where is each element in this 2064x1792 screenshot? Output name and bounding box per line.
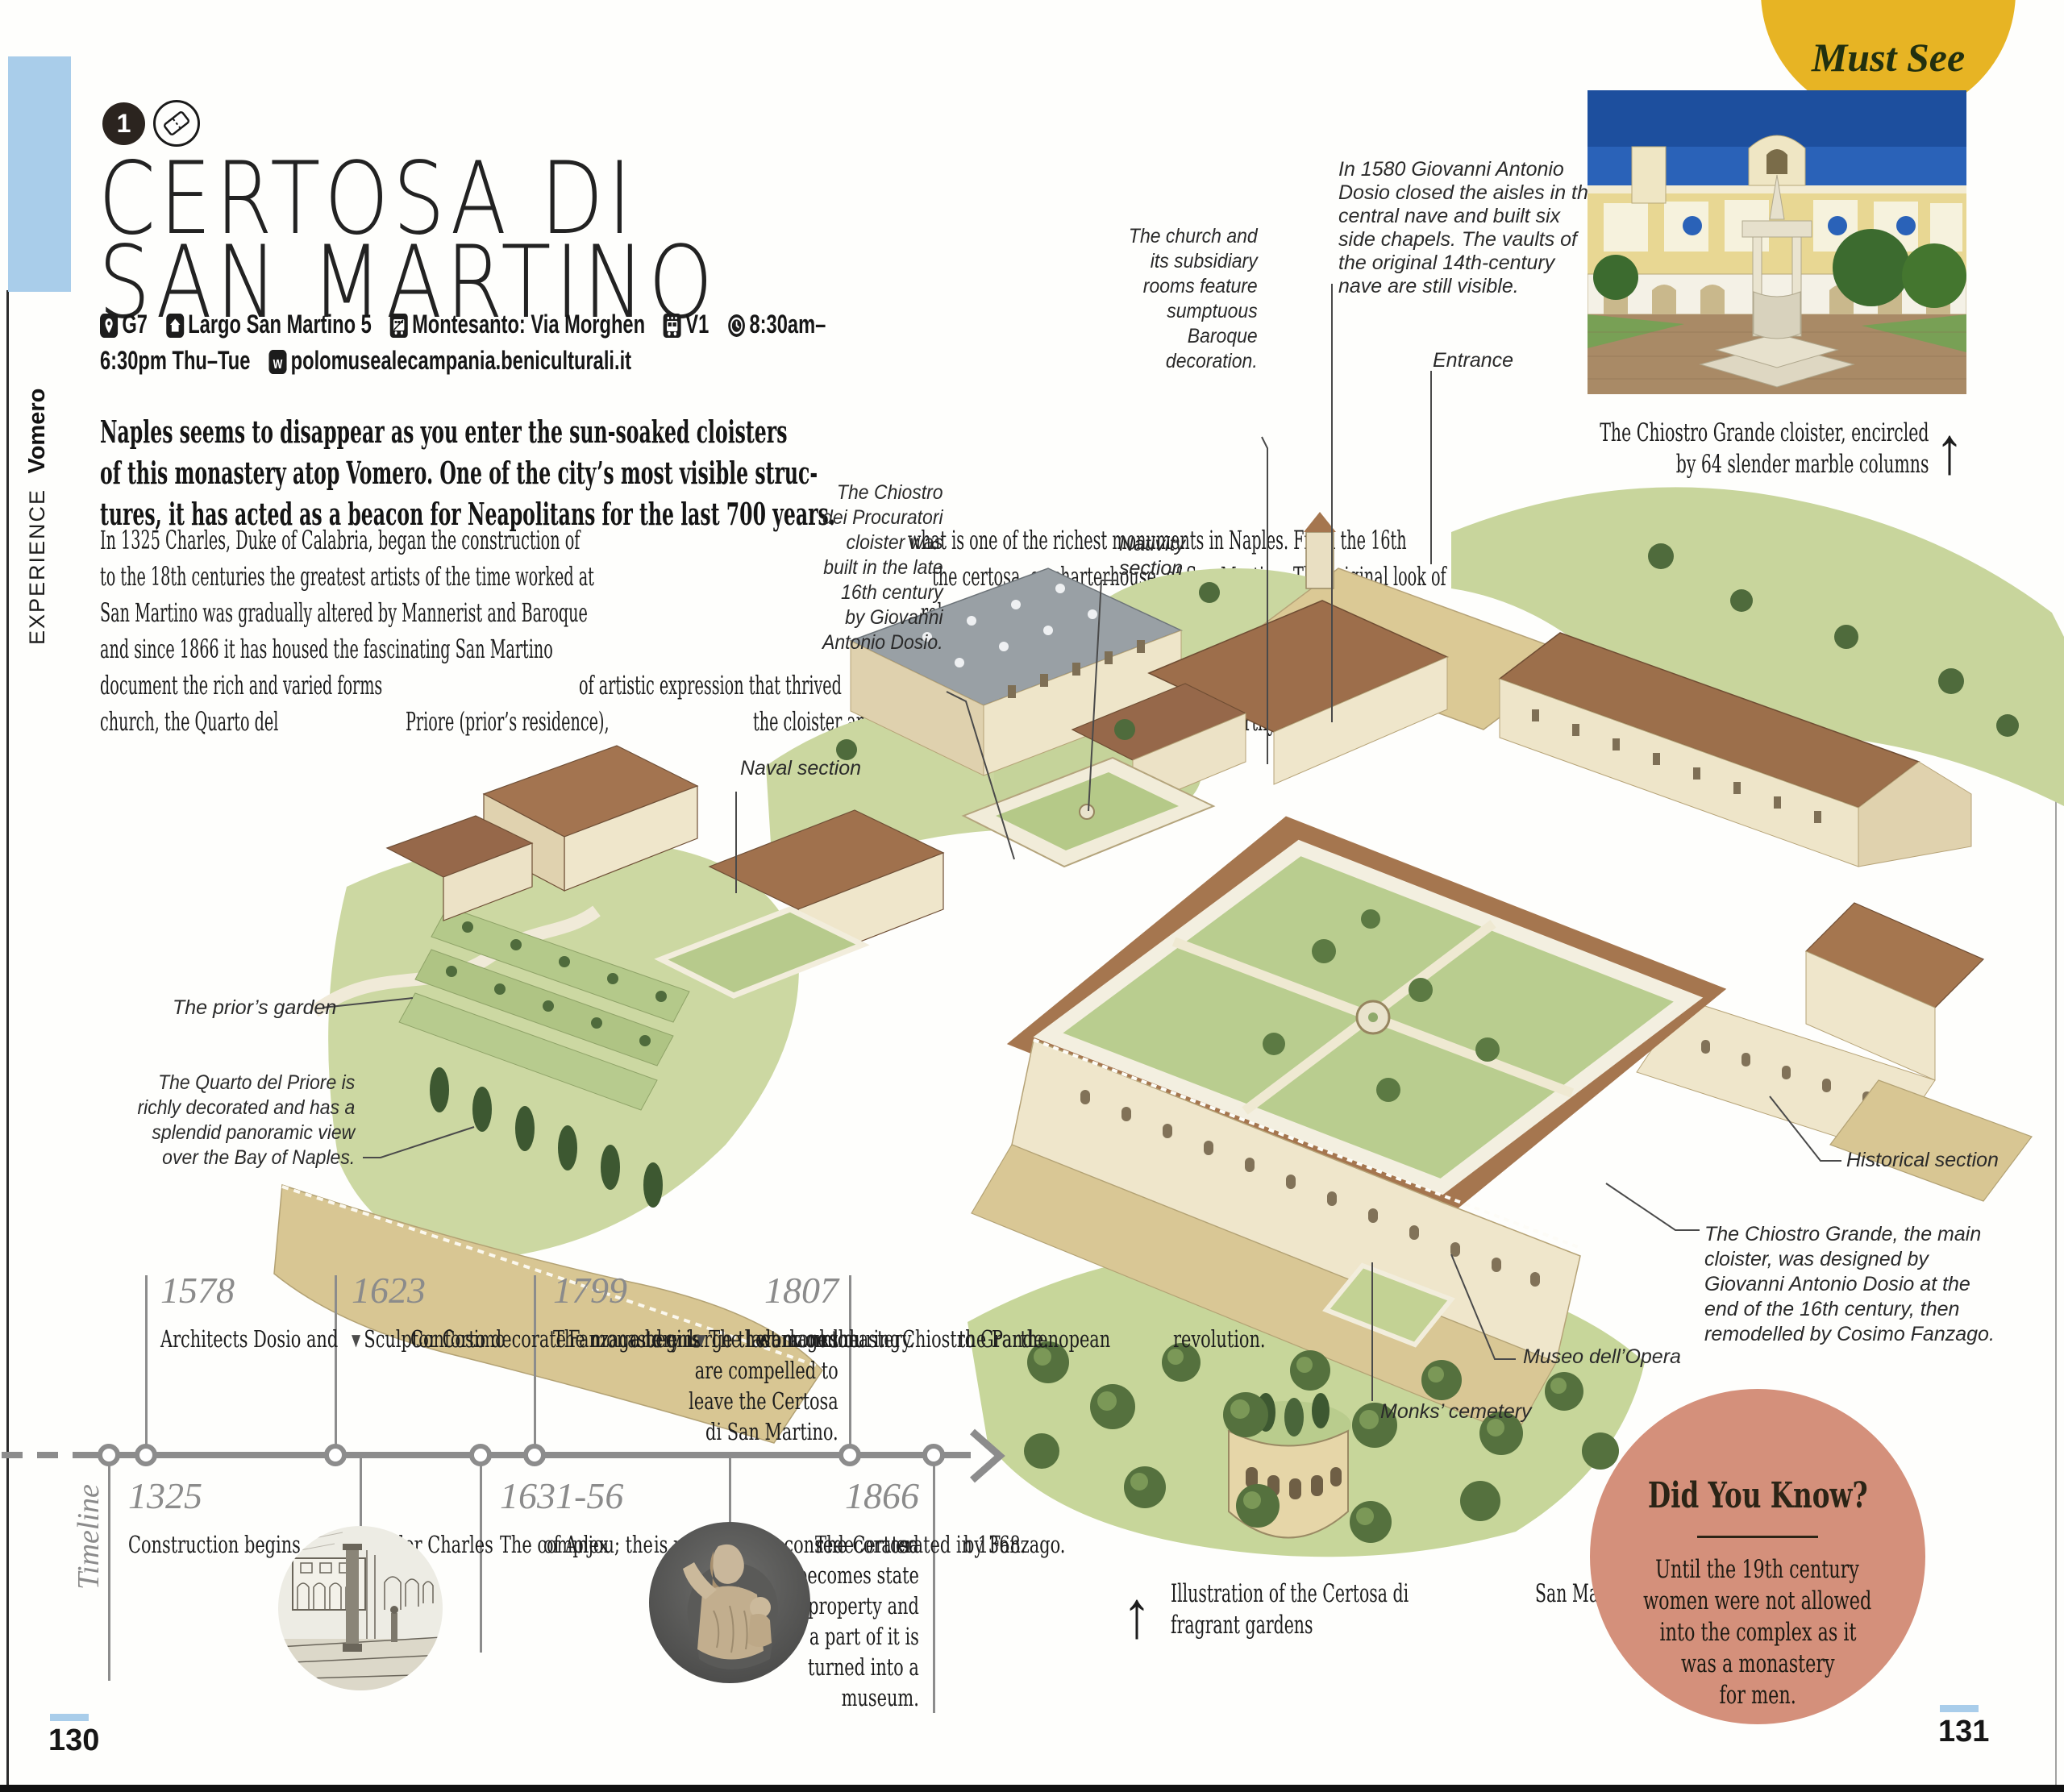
label-dosio-1580: In 1580 Giovanni Antonio Dosio closed th… — [1338, 158, 1600, 298]
label-quarto: The Quarto del Priore is richly decorate… — [137, 1071, 355, 1170]
did-you-know-text: Until the 19th century women were not al… — [1590, 1554, 1925, 1711]
label-church-baroque: The church and its subsidiary rooms feat… — [1129, 224, 1258, 374]
timeline-photo-engraving — [278, 1526, 443, 1690]
illustration-procuratori-cloister — [963, 758, 1213, 867]
timeline-axis-dashed — [2, 1452, 74, 1458]
right-page-number: 131 — [1938, 1715, 1989, 1749]
photo-caption-line: The Chiostro Grande cloister, encircled — [1600, 418, 1929, 449]
info-metro: Montesanto: Via Morghen — [390, 310, 645, 339]
did-you-know-divider — [1697, 1536, 1818, 1538]
right-page-number-bar — [1940, 1705, 1979, 1712]
page-bottom-edge — [0, 1785, 2064, 1792]
ticket-icon — [153, 100, 200, 147]
timeline-connector — [145, 1275, 148, 1455]
timeline-heading: Timeline — [71, 1484, 106, 1590]
label-nativity-section: Nativity section — [1119, 532, 1185, 580]
timeline-node — [469, 1444, 492, 1466]
illustration-caption-arrow-icon: ↑ — [1122, 1577, 1151, 1653]
cloister-photo — [1588, 90, 1966, 394]
must-see-label: Must See — [1761, 34, 2016, 81]
page-left-edge — [6, 290, 9, 1785]
sidebar-section: EXPERIENCE — [25, 489, 49, 645]
body-line: In 1325 Charles, Duke of Calabria, began… — [100, 522, 580, 559]
sight-number: 1 — [117, 109, 131, 138]
photo-caption-line: by 64 slender marble columns — [1600, 449, 1929, 480]
photo-marker-icon: ▼ — [697, 1324, 705, 1355]
sidebar-vertical-label: EXPERIENCE Vomero — [24, 389, 51, 645]
info-row-1: G7 Largo San Martino 5 Montesanto: Via M… — [100, 310, 839, 344]
body-line: in Naples between the 15th — [1025, 667, 1242, 704]
illustration-chiostro-grande — [1034, 832, 1700, 1203]
body-line: the certosa, or charterhouse, of San Mar… — [932, 559, 1446, 595]
body-line: and the 19th centuries. The — [1396, 667, 1613, 704]
info-bus: V1 — [664, 310, 709, 339]
house-icon — [166, 314, 184, 344]
label-museo-opera: Museo dell’Opera — [1523, 1345, 1681, 1369]
clock-icon — [727, 314, 745, 344]
body-line: rebuilding. The French deconsecrated the… — [921, 595, 1409, 631]
info-map: G7 — [100, 310, 148, 339]
body-line: dens are also noteworthy. — [1078, 704, 1280, 740]
info-website: wpolomusealecampania.beniculturali.it — [268, 346, 631, 375]
illustration-quarto-buildings — [387, 746, 943, 996]
info-hours-2: 6:30pm Thu–Tue — [100, 346, 250, 375]
label-procuratori: The Chiostro dei Procuratori cloister wa… — [822, 480, 943, 655]
body-line: Priore (prior’s residence), — [406, 704, 610, 740]
timeline-axis — [74, 1452, 971, 1458]
timeline-node — [838, 1444, 861, 1466]
body-line: church, the Quarto del — [100, 704, 278, 740]
body-line: and since 1866 it has housed the fascina… — [100, 631, 553, 667]
info-hours-1: 8:30am– — [727, 310, 826, 339]
intro-line: of this monastery atop Vomero. One of th… — [100, 452, 818, 493]
label-monks-cemetery: Monks’ cemetery — [1380, 1399, 1532, 1424]
bus-icon — [664, 314, 681, 344]
sidebar-color-block — [8, 56, 71, 292]
label-priors-garden: The prior’s garden — [173, 996, 336, 1020]
intro-line: Naples seems to disappear as you enter t… — [100, 411, 787, 452]
illustration-round-tower — [1225, 1393, 1351, 1538]
did-you-know-title: Did You Know? — [1590, 1475, 1925, 1516]
photo-marker-icon: ▼ — [352, 1324, 360, 1355]
info-row-2: 6:30pm Thu–Tue wpolomusealecampania.beni… — [100, 346, 644, 380]
info-line: G7 Largo San Martino 5 Montesanto: Via M… — [100, 310, 1099, 380]
metro-icon — [390, 314, 408, 344]
illustration-garden-trees — [1024, 1341, 1619, 1543]
illustration-south-facade — [972, 1040, 1580, 1435]
timeline-connector — [108, 1458, 110, 1681]
page-title: CERTOSA DI SAN MARTINO — [98, 150, 853, 332]
body-line: of artistic expression that thrived — [579, 667, 842, 704]
body-line: the cloister and the gar- — [753, 704, 943, 740]
label-naval-section: Naval section — [740, 756, 861, 780]
guidebook-spread: EXPERIENCE Vomero 1 CERTOSA DI SAN MARTI… — [0, 0, 2064, 1792]
body-line: San Martino was gradually altered by Man… — [100, 595, 588, 631]
label-entrance: Entrance — [1433, 348, 1513, 372]
sidebar-area: Vomero — [24, 389, 50, 474]
left-page-number-bar — [50, 1714, 89, 1721]
illustration-terraced-gardens — [399, 907, 689, 1110]
left-page-number: 130 — [48, 1723, 99, 1758]
timeline-entry-1807: 1807 ▼The last monks are compelled to le… — [630, 1270, 838, 1447]
label-historical-section: Historical section — [1846, 1148, 1999, 1172]
body-line: document the rich and varied forms — [100, 667, 382, 704]
timeline-node — [98, 1444, 120, 1466]
info-address: Largo San Martino 5 — [166, 310, 372, 339]
body-paragraph: In 1325 Charles, Duke of Calabria, began… — [100, 522, 2064, 740]
photo-caption-arrow-icon: ↑ — [1935, 413, 1964, 489]
illustration-cypress-trees — [430, 1067, 663, 1208]
photo-caption: The Chiostro Grande cloister, encircled … — [1430, 418, 1929, 480]
svg-text:w: w — [273, 354, 283, 372]
illustration-caption-line: Illustration of the Certosa di — [1171, 1578, 1409, 1610]
timeline-node — [922, 1444, 945, 1466]
label-chiostro-grande: The Chiostro Grande, the main cloister, … — [1704, 1222, 1995, 1347]
timeline-node — [324, 1444, 347, 1466]
map-pin-icon — [100, 314, 118, 344]
timeline-node — [135, 1444, 157, 1466]
timeline-photo-statue — [649, 1522, 810, 1683]
body-line: to the 18th centuries the greatest artis… — [100, 559, 594, 595]
sight-number-badge: 1 — [102, 102, 145, 145]
website-icon: w — [268, 350, 286, 380]
illustration-caption-line: fragrant gardens — [1171, 1610, 1313, 1641]
timeline-node — [523, 1444, 546, 1466]
